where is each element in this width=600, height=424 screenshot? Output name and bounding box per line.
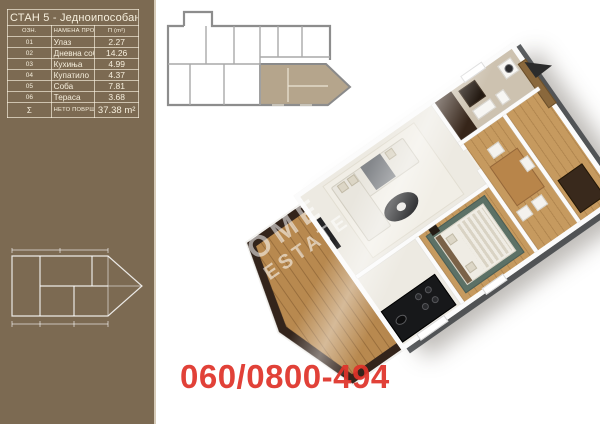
washer-door bbox=[503, 62, 516, 75]
row-id: 06 bbox=[8, 92, 52, 103]
column-header-id: ОЗН. bbox=[8, 26, 52, 37]
row-name: Соба bbox=[51, 81, 95, 92]
row-id: 05 bbox=[8, 81, 52, 92]
row-name: Купатило bbox=[51, 70, 95, 81]
outline-plan-drawing bbox=[6, 246, 148, 336]
table-row: 06 Тераса 3.68 bbox=[8, 92, 139, 103]
sum-label: НЕТО ПОВРШИНА СТАНА bbox=[51, 103, 95, 118]
area-table: СТАН 5 - Једноипособан ОЗН. НАМЕНА ПРОСТ… bbox=[7, 9, 139, 118]
sidebar: СТАН 5 - Једноипособан ОЗН. НАМЕНА ПРОСТ… bbox=[0, 0, 156, 424]
table-sum-row: Σ НЕТО ПОВРШИНА СТАНА 37.38 m² bbox=[8, 103, 139, 118]
table-row: 01 Улаз 2.27 bbox=[8, 37, 139, 48]
row-area: 2.27 bbox=[95, 37, 139, 48]
apartment-title: СТАН 5 - Једноипособан bbox=[8, 10, 139, 26]
row-name: Дневна соба са обед. bbox=[51, 48, 95, 59]
table-row: 03 Кухиња 4.99 bbox=[8, 59, 139, 70]
column-header-area: П (m²) bbox=[95, 26, 139, 37]
table-row: 05 Соба 7.81 bbox=[8, 81, 139, 92]
table-header-row: ОЗН. НАМЕНА ПРОСТОРИЈЕ П (m²) bbox=[8, 26, 139, 37]
row-area: 7.81 bbox=[95, 81, 139, 92]
row-id: 04 bbox=[8, 70, 52, 81]
row-id: 03 bbox=[8, 59, 52, 70]
row-name: Кухиња bbox=[51, 59, 95, 70]
phone-number: 060/0800-494 bbox=[180, 358, 390, 396]
row-area: 4.37 bbox=[95, 70, 139, 81]
row-area: 14.26 bbox=[95, 48, 139, 59]
row-name: Тераса bbox=[51, 92, 95, 103]
row-area: 3.68 bbox=[95, 92, 139, 103]
row-name: Улаз bbox=[51, 37, 95, 48]
row-area: 4.99 bbox=[95, 59, 139, 70]
sum-symbol: Σ bbox=[8, 103, 52, 118]
key-plan-highlighted-unit bbox=[260, 64, 350, 105]
table-title-row: СТАН 5 - Једноипособан bbox=[8, 10, 139, 26]
floorplan-flyer: СТАН 5 - Једноипособан ОЗН. НАМЕНА ПРОСТ… bbox=[0, 0, 600, 424]
sum-area: 37.38 m² bbox=[95, 103, 139, 118]
key-plan bbox=[160, 2, 355, 114]
table-row: 04 Купатило 4.37 bbox=[8, 70, 139, 81]
table-row: 02 Дневна соба са обед. 14.26 bbox=[8, 48, 139, 59]
row-id: 02 bbox=[8, 48, 52, 59]
row-id: 01 bbox=[8, 37, 52, 48]
column-header-name: НАМЕНА ПРОСТОРИЈЕ bbox=[51, 26, 95, 37]
